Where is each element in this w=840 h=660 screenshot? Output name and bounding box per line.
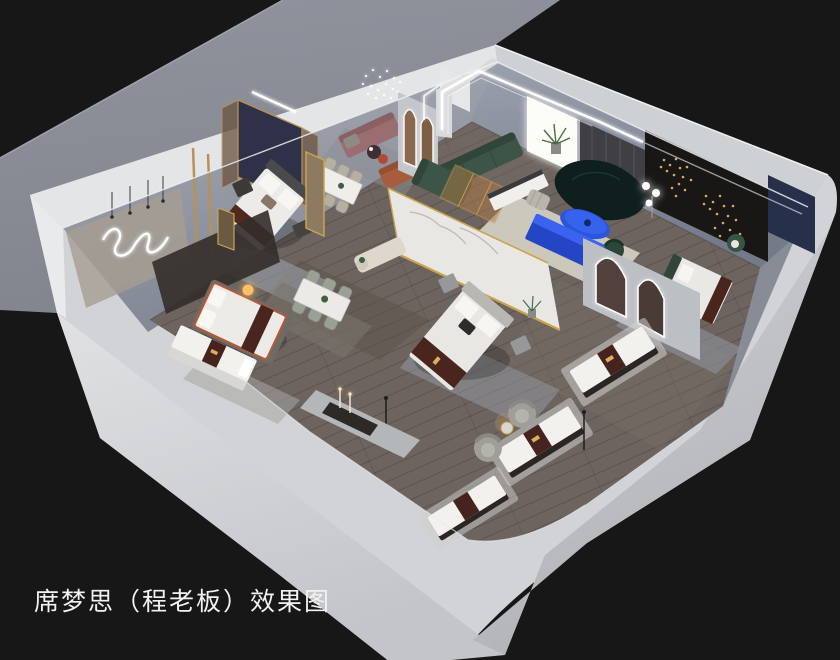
round-side-table: [378, 154, 388, 164]
white-pillow: [731, 240, 739, 248]
arch-mirror: [404, 110, 416, 167]
gold-floor-mirror: [306, 152, 324, 236]
showroom-isometric-render: [0, 0, 840, 660]
glass-panel: [222, 100, 238, 188]
gold-arch-mirror: [218, 208, 234, 250]
green-armchair: [727, 234, 745, 252]
barrel-chair: [474, 434, 502, 462]
decor-sphere: [369, 147, 373, 151]
barrel-chair: [508, 400, 536, 428]
glowing-table-lamp: [243, 285, 254, 296]
render-caption: 席梦思（程老板）效果图: [34, 582, 331, 618]
plant-icon: [359, 257, 365, 263]
round-side-table: [501, 422, 513, 434]
showroom-render-canvas: 席梦思（程老板）效果图: [0, 0, 840, 660]
